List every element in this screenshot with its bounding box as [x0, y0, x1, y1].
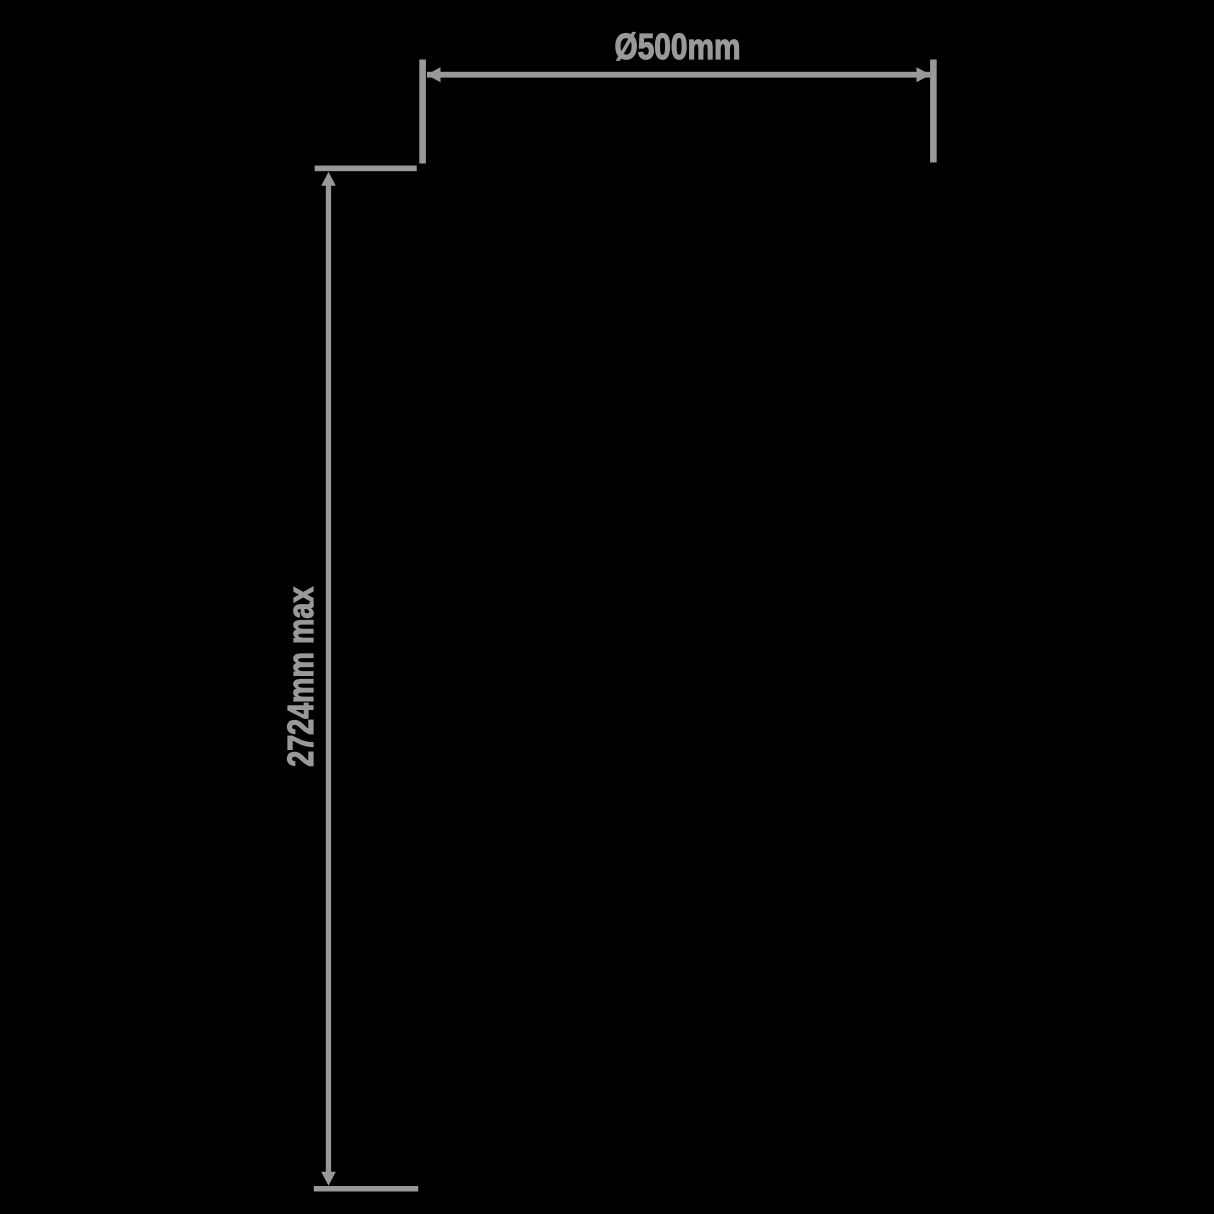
- svg-text:2724mm max: 2724mm max: [280, 587, 321, 767]
- svg-text:Ø500mm: Ø500mm: [615, 26, 741, 67]
